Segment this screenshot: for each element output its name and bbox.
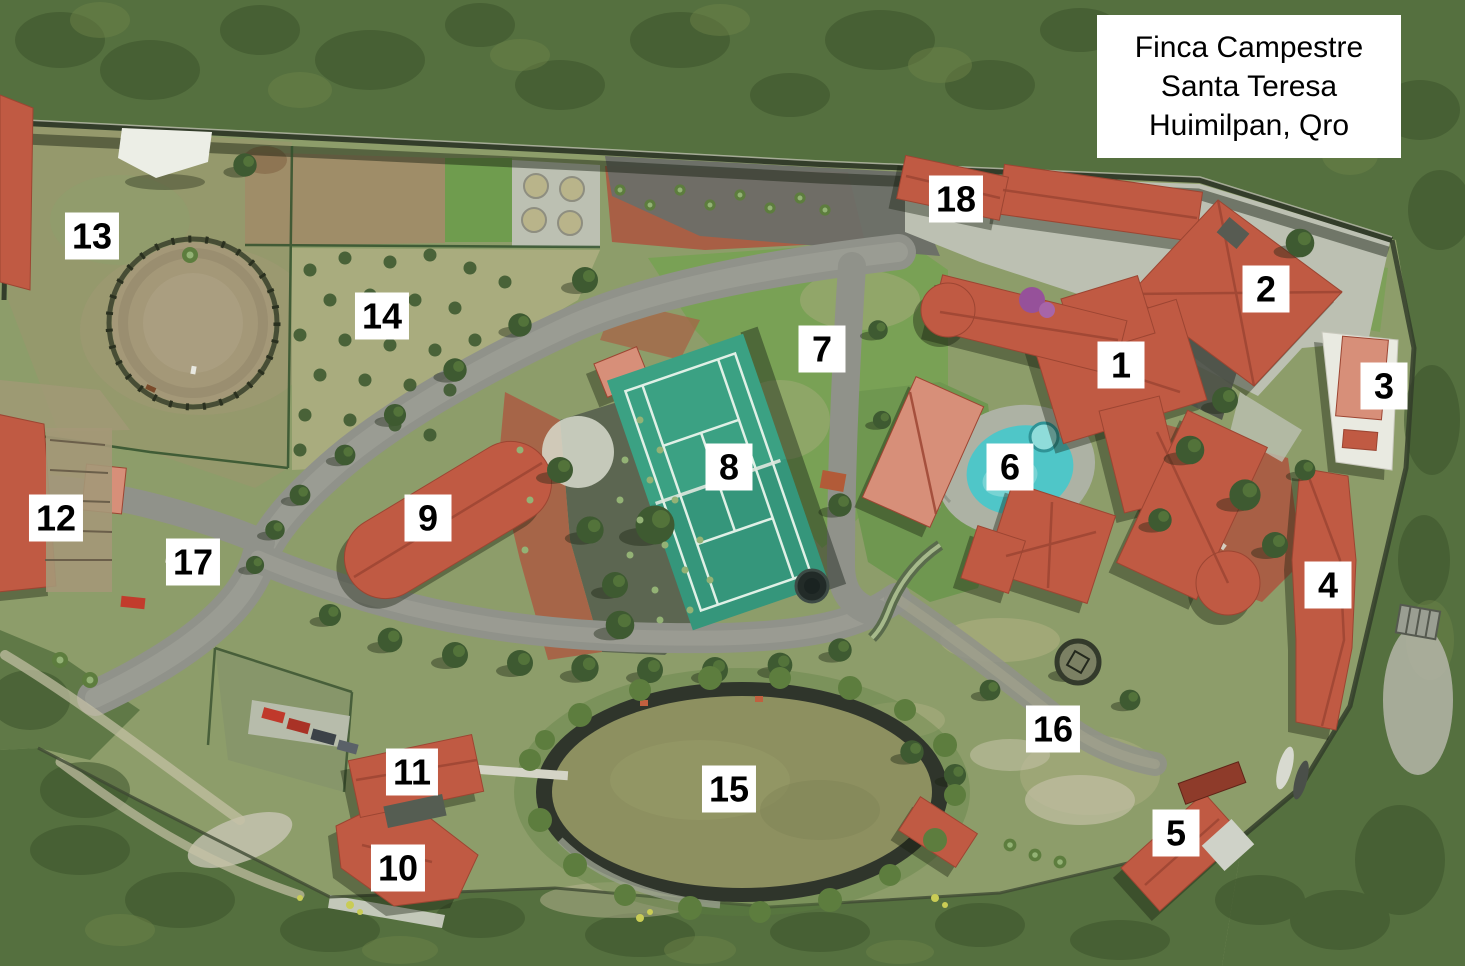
- metal-grate: [1396, 605, 1440, 640]
- map-label-14: 14: [355, 293, 409, 340]
- annotated-aerial-map: Finca Campestre Santa Teresa Huimilpan, …: [0, 0, 1465, 966]
- map-label-8: 8: [706, 444, 753, 491]
- hot-tub: [796, 570, 828, 602]
- map-label-17: 17: [166, 539, 220, 586]
- map-label-3: 3: [1361, 363, 1408, 410]
- rocky-slope: [1383, 625, 1453, 775]
- northwest-corner-roof: [0, 95, 33, 290]
- map-label-13: 13: [65, 213, 119, 260]
- title-line-3: Huimilpan, Qro: [1103, 106, 1395, 145]
- map-label-16: 16: [1026, 706, 1080, 753]
- map-title: Finca Campestre Santa Teresa Huimilpan, …: [1097, 15, 1401, 158]
- map-label-6: 6: [987, 444, 1034, 491]
- map-label-2: 2: [1243, 266, 1290, 313]
- garden-plot-lawn: [445, 158, 512, 242]
- map-label-5: 5: [1153, 810, 1200, 857]
- shade-canopy: [118, 128, 212, 190]
- map-label-4: 4: [1305, 562, 1352, 609]
- round-pen: [109, 239, 277, 407]
- planter-patio: [512, 160, 600, 248]
- map-label-7: 7: [799, 326, 846, 373]
- map-label-11: 11: [386, 749, 438, 796]
- map-label-10: 10: [371, 845, 425, 892]
- map-label-1: 1: [1098, 342, 1145, 389]
- map-label-15: 15: [702, 766, 756, 813]
- title-line-1: Finca Campestre: [1103, 28, 1395, 67]
- map-label-18: 18: [929, 176, 983, 223]
- title-line-2: Santa Teresa: [1103, 67, 1395, 106]
- map-label-12: 12: [29, 495, 83, 542]
- map-label-9: 9: [405, 495, 452, 542]
